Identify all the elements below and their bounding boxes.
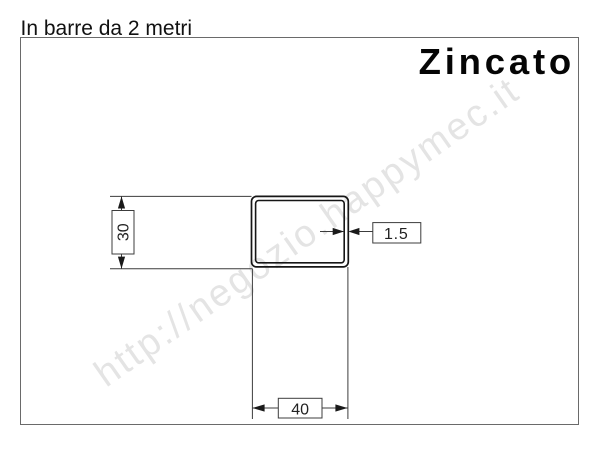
svg-text:30: 30 — [116, 223, 133, 241]
svg-text:Zincato: Zincato — [419, 41, 575, 82]
svg-text:http://negozio.happymec.it: http://negozio.happymec.it — [87, 69, 528, 395]
svg-text:In barre da 2 metri: In barre da 2 metri — [21, 17, 193, 40]
svg-text:1.5: 1.5 — [384, 226, 409, 243]
svg-text:40: 40 — [291, 401, 309, 418]
